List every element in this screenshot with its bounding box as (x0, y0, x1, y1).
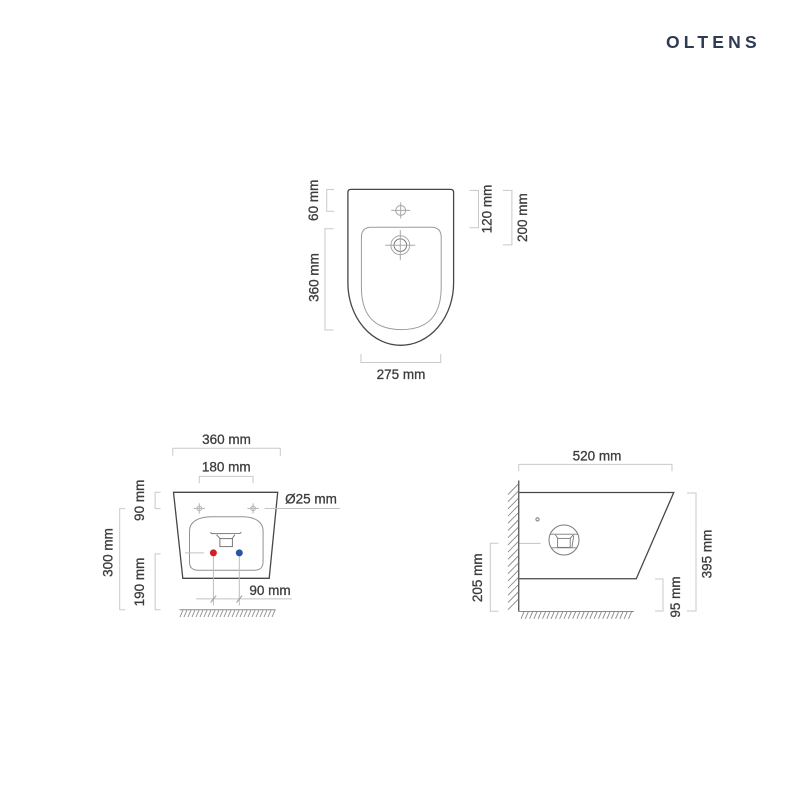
svg-text:360 mm: 360 mm (202, 432, 251, 447)
svg-text:190 mm: 190 mm (132, 558, 147, 607)
svg-text:60 mm: 60 mm (306, 180, 321, 221)
svg-text:200 mm: 200 mm (515, 193, 530, 242)
svg-text:275 mm: 275 mm (377, 367, 426, 382)
svg-text:395 mm: 395 mm (700, 530, 715, 579)
svg-text:OLTENS: OLTENS (666, 32, 761, 52)
svg-text:180 mm: 180 mm (202, 460, 251, 475)
svg-text:95 mm: 95 mm (668, 576, 683, 617)
svg-text:90 mm: 90 mm (249, 583, 290, 598)
svg-text:Ø25 mm: Ø25 mm (285, 492, 337, 507)
svg-text:205 mm: 205 mm (470, 553, 485, 602)
svg-text:300 mm: 300 mm (100, 528, 115, 577)
svg-text:90 mm: 90 mm (132, 480, 147, 521)
svg-text:120 mm: 120 mm (480, 185, 495, 234)
svg-text:360 mm: 360 mm (307, 253, 322, 302)
svg-text:520 mm: 520 mm (573, 449, 622, 464)
